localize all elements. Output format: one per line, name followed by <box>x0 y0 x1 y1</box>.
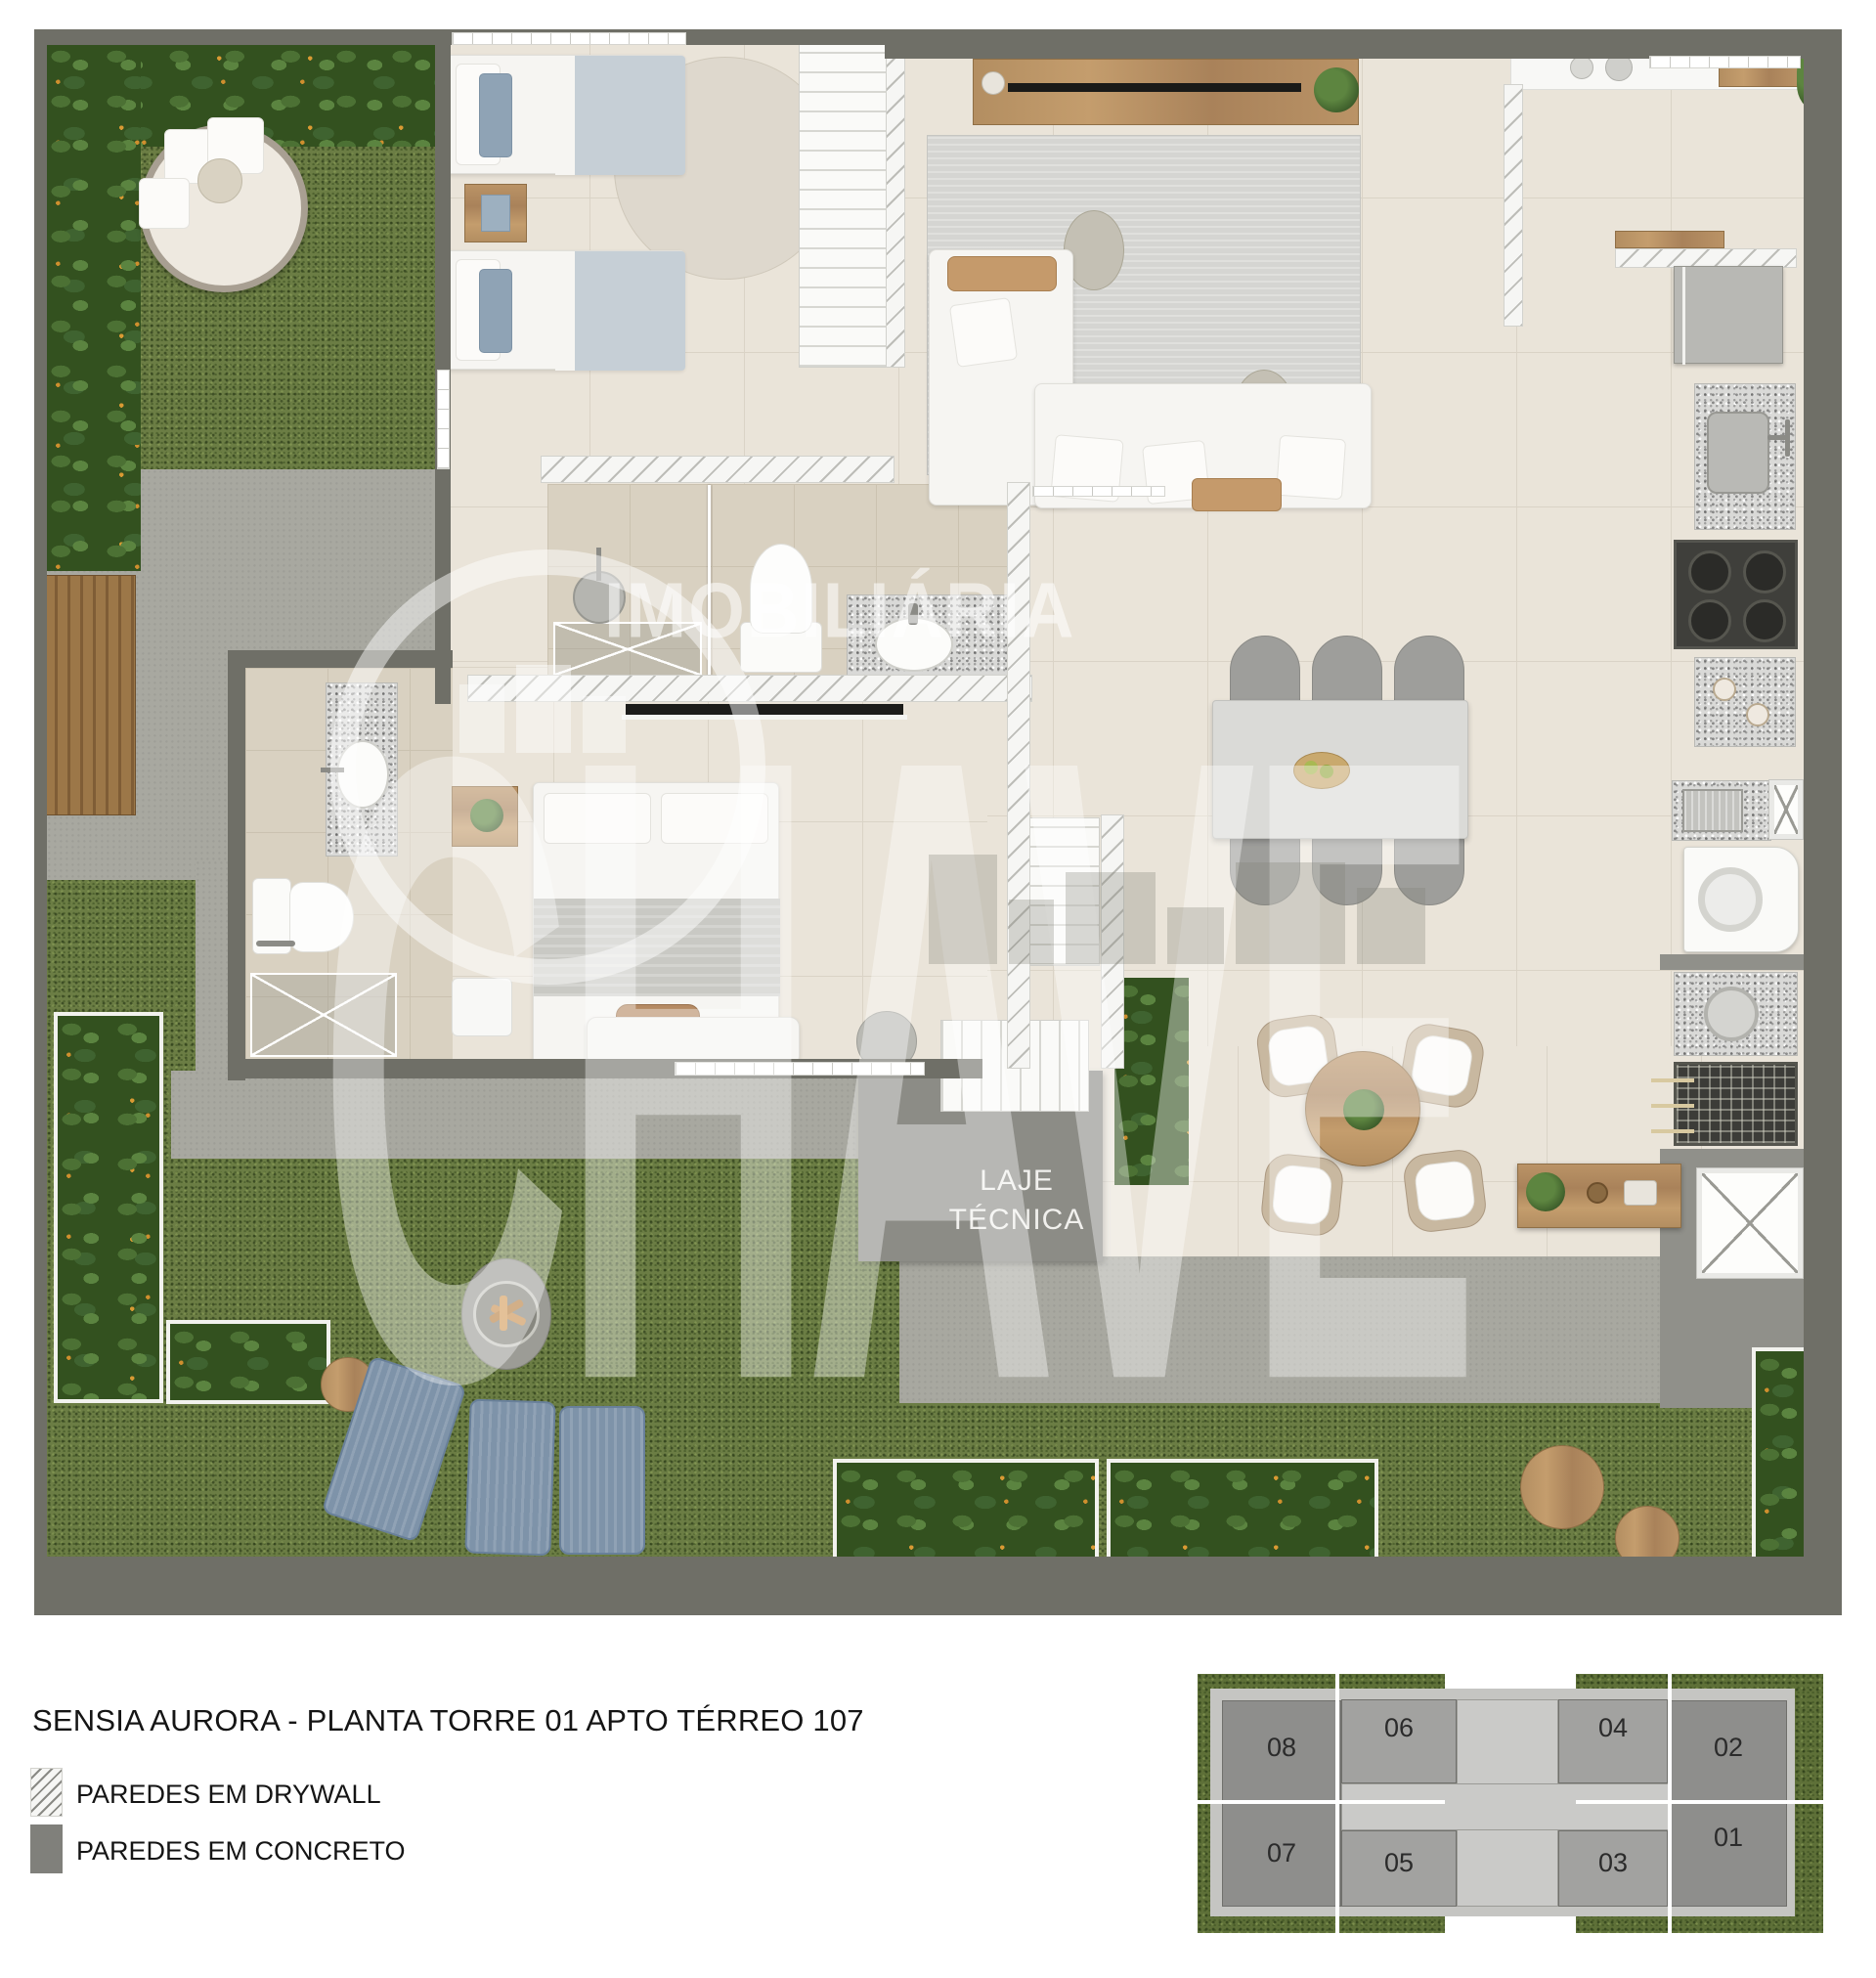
pillow <box>479 269 512 353</box>
keyplan-label-02: 02 <box>1699 1733 1758 1763</box>
dining-chair <box>1230 827 1300 905</box>
keyplan-label-05: 05 <box>1370 1848 1428 1878</box>
keyplan-label-08: 08 <box>1252 1733 1311 1763</box>
bedroom1-window <box>452 32 686 45</box>
coffee-cup <box>1713 678 1736 701</box>
planter-bottom-left <box>166 1320 330 1404</box>
vanity-sink <box>336 740 389 809</box>
planter-bottom-center-1 <box>833 1459 1099 1564</box>
decor-item <box>982 71 1005 95</box>
single-bed <box>447 55 684 174</box>
drywall-hall-right <box>1101 814 1124 1069</box>
washing-machine <box>1683 847 1799 952</box>
cushion <box>1414 1160 1477 1223</box>
outdoor-sideboard <box>1517 1164 1681 1228</box>
sofa-tray <box>1192 478 1282 511</box>
wall-top-thick <box>885 29 1842 59</box>
blanket <box>534 899 780 996</box>
pillow <box>949 297 1018 368</box>
patio-chair <box>1259 1152 1345 1238</box>
drywall-bathroom1-top <box>541 456 894 483</box>
pillow <box>197 158 242 203</box>
nightstand-plant <box>470 799 503 832</box>
master-terrace-door <box>675 1062 925 1076</box>
master-tv-shelf <box>622 715 907 720</box>
hall-closet <box>1020 817 1100 966</box>
tv <box>1008 83 1301 92</box>
faucet-icon <box>1785 419 1790 457</box>
firewood <box>500 1296 507 1331</box>
dining-table <box>1212 700 1468 839</box>
burner-icon <box>1743 599 1786 642</box>
laje-line1: LAJE <box>919 1162 1114 1201</box>
burner-icon <box>1688 599 1731 642</box>
legend-label-concrete: PAREDES EM CONCRETO <box>76 1836 406 1867</box>
pillow <box>479 73 512 157</box>
bathroom1-vanity <box>847 594 1015 681</box>
drywall-bathroom1-bottom <box>467 675 1032 702</box>
round-deck-table <box>1520 1445 1604 1529</box>
skewer-icon <box>1651 1104 1694 1108</box>
wall-suite-top <box>228 650 453 668</box>
service-divider-wall <box>1660 954 1804 970</box>
laundry-sink-counter <box>1672 780 1771 841</box>
nightstand <box>464 184 527 242</box>
fruit-bowl <box>1293 752 1350 789</box>
wall-left <box>34 29 47 1615</box>
cushion <box>1271 1164 1333 1226</box>
laundry-sink <box>1682 789 1743 832</box>
fruit <box>1320 765 1333 778</box>
fruit <box>1304 761 1318 774</box>
laje-line2: TÉCNICA <box>919 1201 1114 1240</box>
fire-pit-bowl <box>473 1281 540 1347</box>
service-counter-round-sink <box>1674 972 1798 1056</box>
shower-arm-icon <box>596 548 601 581</box>
shower-floor <box>250 973 397 1057</box>
sun-lounger <box>464 1399 555 1557</box>
decor-item <box>1624 1180 1657 1206</box>
shower-head-icon <box>256 941 295 946</box>
legend-label-drywall: PAREDES EM DRYWALL <box>76 1780 381 1810</box>
keyplan-label-01: 01 <box>1699 1823 1758 1853</box>
wall-right <box>1804 29 1842 1557</box>
wall-bottom <box>34 1557 1842 1615</box>
legend-swatch-concrete <box>30 1824 63 1873</box>
wall-suite-left <box>228 650 245 1080</box>
kitchen-window <box>1649 56 1801 68</box>
wardrobe <box>799 43 887 368</box>
fridge-door-line <box>1682 267 1685 365</box>
kitchen-sink-counter <box>1694 383 1796 530</box>
nightstand <box>452 786 518 847</box>
drywall-living-kitchen <box>1504 84 1523 327</box>
technical-shaft <box>1697 1168 1803 1278</box>
duvet <box>555 56 685 175</box>
vanity-sink <box>875 617 953 672</box>
pillow <box>139 178 190 229</box>
pillow <box>661 793 768 844</box>
laje-tecnica-label: LAJE TÉCNICA <box>919 1162 1114 1239</box>
bathroom2-vanity <box>326 682 398 857</box>
burner-icon <box>1743 550 1786 593</box>
drywall-wardrobe-side <box>886 43 905 368</box>
dining-chair <box>1394 827 1464 905</box>
bedside-table <box>452 978 512 1036</box>
toilet-bowl <box>750 544 812 634</box>
towel-shelf <box>1032 486 1165 497</box>
floorplan-page: LAJE TÉCNICA IMOBILIÁRIA CHAVE SENSIA AU… <box>0 0 1876 1978</box>
planter-bottom-center-2 <box>1107 1459 1378 1564</box>
barbecue-grill <box>1674 1062 1798 1146</box>
pillow <box>1276 435 1346 501</box>
skewer-icon <box>1651 1129 1694 1133</box>
planter-left-lower <box>54 1012 163 1403</box>
drywall-pass-counter <box>1615 248 1797 268</box>
keyplan: 08 06 04 02 07 05 03 01 <box>1198 1674 1823 1933</box>
skewer-icon <box>1651 1078 1694 1082</box>
headrest <box>947 256 1057 291</box>
round-sink <box>1704 987 1759 1041</box>
cushion <box>1409 1033 1474 1098</box>
keyplan-label-07: 07 <box>1252 1838 1311 1868</box>
pass-shelf <box>1615 231 1724 248</box>
kitchen-counter-2 <box>1694 657 1796 747</box>
burner-icon <box>1688 550 1731 593</box>
terrace-planter-strip <box>1114 978 1189 1185</box>
page-title: SENSIA AURORA - PLANTA TORRE 01 APTO TÉR… <box>32 1703 912 1738</box>
wood-deck-bench <box>44 575 136 815</box>
duvet <box>555 251 685 371</box>
patio-round-table <box>1305 1051 1420 1166</box>
cooktop <box>1674 540 1798 649</box>
keyplan-label-06: 06 <box>1370 1713 1428 1743</box>
tv-console <box>973 59 1359 125</box>
console-plant <box>1314 67 1359 112</box>
plate <box>1570 56 1593 79</box>
toilet-bowl <box>289 882 354 952</box>
shower-floor <box>553 622 702 677</box>
fire-pit <box>461 1258 551 1370</box>
kitchen-sink <box>1707 412 1769 494</box>
refrigerator <box>1674 266 1783 364</box>
keyplan-unit-01 <box>1668 1803 1787 1907</box>
single-bed <box>447 250 684 370</box>
shower-glass <box>708 485 711 677</box>
planter-garden-left <box>47 43 141 571</box>
faucet-icon <box>321 768 344 772</box>
keyplan-label-03: 03 <box>1584 1848 1642 1878</box>
pillow <box>544 793 651 844</box>
walkway-suite-bottom <box>171 1071 934 1159</box>
drywall-hall-left <box>1007 482 1030 1069</box>
decor-item <box>1587 1182 1608 1204</box>
keyplan-divider <box>1198 1800 1445 1804</box>
keyplan-divider <box>1576 1800 1823 1804</box>
service-duct <box>1769 780 1803 839</box>
washer-door-icon <box>1698 867 1763 932</box>
legend-swatch-drywall <box>30 1768 63 1817</box>
master-tv <box>626 704 903 715</box>
bedroom1-garden-door <box>437 370 450 469</box>
patio-chair <box>1401 1147 1488 1234</box>
table-plant <box>1343 1089 1384 1130</box>
round-daybed <box>140 124 308 292</box>
sun-lounger <box>559 1406 645 1555</box>
dining-chair <box>1312 827 1382 905</box>
keyplan-label-04: 04 <box>1584 1713 1642 1743</box>
sideboard-plant <box>1526 1172 1565 1211</box>
faucet-icon <box>908 603 918 625</box>
coffee-cup <box>1746 703 1769 726</box>
books <box>481 195 510 232</box>
